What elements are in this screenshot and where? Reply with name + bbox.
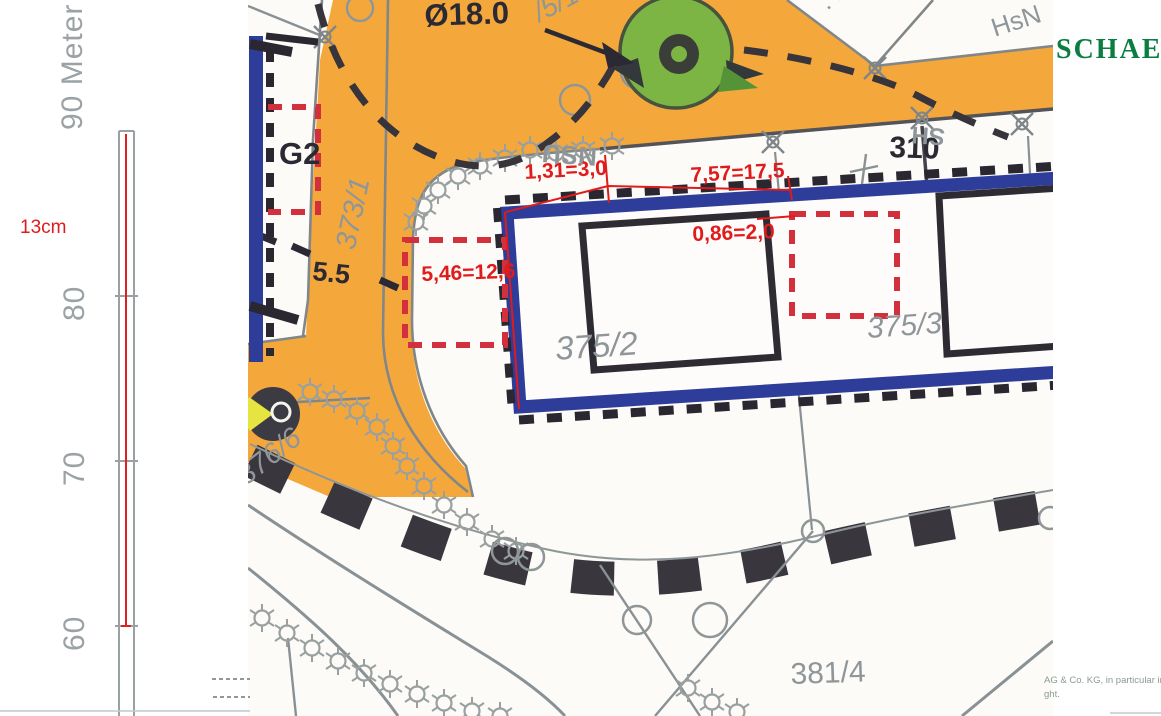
scan-text-nsu: NSU [541, 140, 598, 170]
map-text-layer: Ø18.0 /5/1 . 12 HsN G2 373/1 5.5 1,31=3,… [248, 0, 1053, 716]
parcel-label-375-2: 375/2 [554, 326, 639, 365]
parcel-label-376-6: 376/6 [248, 423, 307, 491]
scan-text-sh: SH [911, 122, 946, 148]
scale-tick-80: 80 [60, 286, 90, 321]
fence-length-label: 5.5 [311, 258, 351, 289]
parcel-label-375-3: 375/3 [866, 309, 943, 344]
tree-diameter-label: Ø18.0 [424, 0, 509, 31]
dimension-top-right: 7,57=17,5 [690, 160, 785, 186]
garage-label-g2: G2 [279, 138, 320, 169]
legend-dashed-lines [212, 679, 250, 697]
house-abbr-label: HsN [988, 0, 1044, 40]
brand-watermark: SCHAEFF [1056, 34, 1161, 66]
copyright-line-2: ght. [1044, 688, 1161, 702]
dimension-left: 5,46=12,6 [421, 261, 516, 285]
site-plan-page: 90 Meter 80 70 60 13cm Ø18.0 /5/1 . 12 H… [0, 0, 1161, 716]
parcel-label-375-1: /5/1 [529, 0, 583, 27]
dimension-offset: 0,86=2,0 [692, 221, 775, 245]
scale-note-13cm: 13cm [20, 217, 66, 239]
parcel-label-381-4: 381/4 [790, 657, 866, 690]
copyright-line-1: AG & Co. KG, in particular in [1044, 674, 1161, 688]
copyright-text: AG & Co. KG, in particular in ght. [1044, 674, 1161, 702]
house-number-label: . 12 [814, 0, 862, 15]
scale-tick-60: 60 [60, 616, 90, 651]
scale-label-90-meter: 90 Meter [58, 4, 88, 130]
scale-tick-70: 70 [60, 451, 90, 486]
scale-bar [115, 131, 138, 716]
parcel-label-373-1: 373/1 [332, 175, 375, 252]
